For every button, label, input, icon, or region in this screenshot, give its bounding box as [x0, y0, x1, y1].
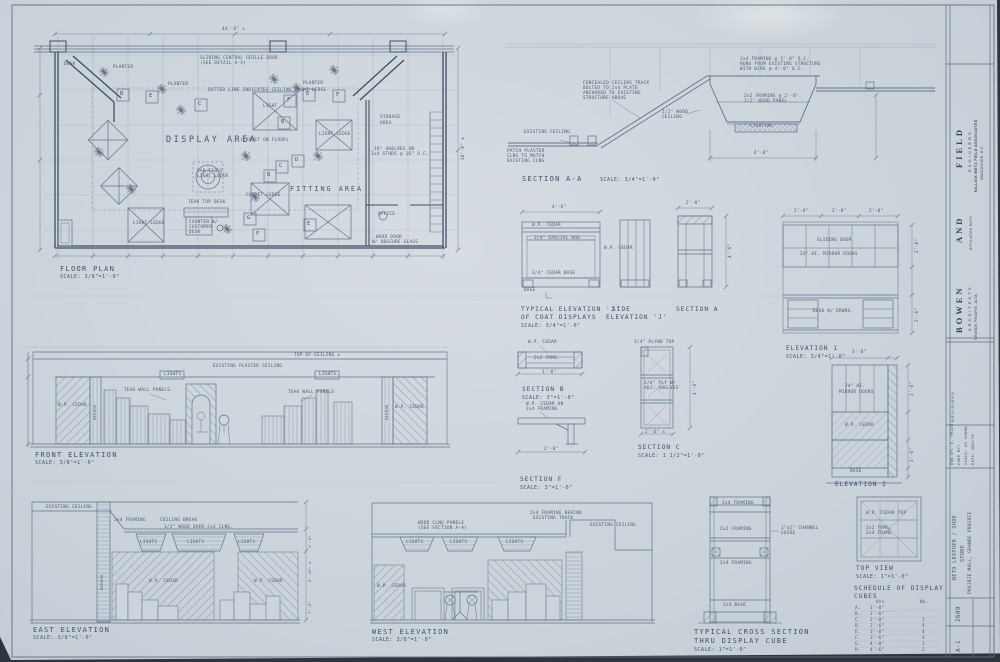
panel-note: 1/2" WOOD PANEL — [744, 100, 787, 104]
elev-j-title: TYPICAL ELEVATION 'J' — [521, 307, 620, 313]
wp-cedar-label: W.P. CEDAR — [377, 585, 406, 589]
sheet-scale: SCALE: AS SHOWN — [964, 426, 968, 465]
schedule-cell: 4'-6" — [870, 649, 884, 653]
desk-drawers-label: DESK W/ DRWRS. — [813, 310, 853, 314]
section-a-title: SECTION A — [676, 307, 719, 313]
dim: 2'-6" — [911, 448, 915, 462]
checked-by: CHKD BY: — [957, 444, 961, 465]
overall-dim: 44'-6" ± — [222, 28, 245, 32]
schedule-cell: 2'-0" — [870, 619, 884, 623]
side-elev-j-title: ELEVATION 'J' — [606, 315, 667, 321]
schedule-cell: 4 — [922, 625, 925, 629]
schedule-cell: 3'-0" — [870, 631, 884, 635]
section-aa-title: SECTION A-A — [522, 176, 583, 183]
cube-letter: E — [306, 92, 310, 98]
wp-cedar-label: W.P. CEDAR — [604, 247, 633, 251]
wp-cedar-label: W.P. CEDAR — [845, 424, 874, 428]
schedule-cell: 2'-6" — [870, 625, 884, 629]
dim: 1'-6" — [542, 371, 556, 375]
elev-j-scale: SCALE: 3/4"=1'-0" — [521, 324, 581, 329]
lights-label: LIGHTS — [450, 541, 467, 545]
mirror-doors-label: 24" HI. — [845, 385, 865, 389]
drawing-sheet-photo: FLOOR PLAN SCALE: 3/8"=1'-0" DISPLAY ARE… — [0, 0, 1000, 662]
cube-letter: C — [279, 164, 283, 170]
planter-label: PLANTER — [303, 82, 323, 86]
framing-label: 2x2 FRMG. — [534, 357, 560, 361]
cedar-top-label: W.P. CEDAR TOP — [866, 512, 906, 516]
schedule-row: E. — [855, 631, 861, 635]
schedule-row: A. — [855, 607, 861, 611]
cube-letter: B — [120, 92, 124, 98]
existing-ceiling-note: EXISTING CEILING — [524, 131, 570, 135]
schedule-cell: 1'-0" — [870, 607, 884, 611]
teak-panels-note: TEAK WALL PANELS — [124, 389, 170, 393]
cube-letter: F — [287, 98, 291, 104]
firm-name-field: FIELD — [955, 127, 964, 168]
framing-label: 2x4 FRAMING — [720, 562, 752, 566]
job-number: 2609 — [956, 606, 962, 622]
floor-plan-scale: SCALE: 3/8"=1'-0" — [60, 275, 120, 280]
ceiling-panels-note: (SEE SECTION A-A) — [418, 527, 467, 531]
schedule-title: CUBES — [854, 594, 878, 600]
dim: 2'-6" — [916, 308, 920, 322]
elev-2-title: ELEVATION 2 — [835, 482, 887, 488]
oak-table-label: LIGHT LEDGE — [197, 175, 229, 179]
schedule-cell: 4'-0" — [870, 643, 884, 647]
cube-letter: F — [336, 93, 340, 99]
associates-label: KILLICK METZ FIELD ASSOCIATES — [975, 120, 979, 192]
framing-label: 2x4 FRAME — [866, 532, 892, 536]
existing-ceiling-note: EXISTING CEILING — [590, 524, 636, 528]
elev-1-title: ELEVATION 1 — [786, 346, 838, 352]
wood-door-note: W/ OBSCURE GLASS — [372, 241, 418, 245]
cross-section-title: THRU DISPLAY CUBE — [694, 638, 788, 645]
schedule-row: H. — [855, 649, 861, 653]
side-elev-j-title: SIDE — [612, 307, 631, 313]
mirror-label: MIRROR — [93, 404, 97, 420]
wood-ceiling-note: CEILING — [662, 116, 682, 120]
dim: 4'-6" — [694, 381, 698, 395]
teak-desk-label: TEAK TOP DESK — [188, 201, 226, 205]
cube-letter: B — [281, 120, 285, 126]
elev-1-linework — [781, 214, 914, 335]
lights-label: LIGHTS — [164, 373, 181, 377]
wp-cedar-label: W.P. CEDAR — [528, 341, 557, 345]
wood-ceiling-note: 1/2" WOOD OVER 2x4 CLNG. — [164, 526, 233, 530]
existing-ceiling-note: EXISTING PLASTER CEILING — [213, 365, 282, 369]
schedule-row: B. — [855, 613, 861, 617]
cove-dim: 4'-0" — [754, 152, 768, 156]
desk-label: DESK — [64, 63, 76, 67]
top-view-scale: SCALE: 1"=1'-0" — [856, 575, 909, 580]
wp-cedar-label: W.P. CEDAR — [254, 580, 283, 584]
schedule-col-hts: Hts — [876, 601, 885, 605]
firm-name-and: AND — [955, 216, 964, 243]
east-elev-title: EAST ELEVATION — [33, 627, 110, 634]
ceiling-break-note: CEILING BREAK — [160, 519, 198, 523]
floor-plan-title: FLOOR PLAN — [60, 266, 115, 273]
dim: 1'-6" — [308, 535, 312, 548]
section-c-scale: SCALE: 1 1/2"=1'-0" — [638, 454, 705, 459]
cube-letter: D — [295, 158, 299, 164]
ceiling-track-note: STRUCTURE ABOVE — [583, 97, 626, 101]
elev-2-linework — [826, 356, 910, 483]
elev-1-scale: SCALE: 3/4"=1'-0" — [786, 355, 846, 360]
lights-label: LIGHTS — [406, 541, 423, 545]
existing-ceiling-note: EXISTING CEILING — [46, 506, 92, 510]
dim: 3'-0" — [852, 351, 866, 355]
sheet-number: A-1 — [956, 640, 962, 652]
schedule-cell: 4 — [922, 631, 925, 635]
light-label: LIGHT — [263, 105, 277, 109]
dim: 2'-8" — [794, 210, 808, 214]
cube-letter: B — [267, 173, 271, 179]
display-area-note: (CARPET ON FLOOR) — [240, 139, 289, 143]
mirror-doors-label: MIRROR DOORS — [839, 391, 874, 395]
drawn-by: DWN BY: E. FRAZO — [950, 424, 954, 465]
engineers-label: ENGINEERS — [968, 130, 972, 172]
dim: 2'-0" — [544, 448, 558, 452]
teak-panels-note: TEAK WALL PANELS — [288, 391, 334, 395]
dim: 7'-6" — [308, 601, 312, 614]
sliding-door-label: SLIDING DOOR — [817, 239, 852, 243]
floor-plan-linework — [34, 32, 460, 260]
west-elev-scale: SCALE: 3/8"=1'-0" — [372, 638, 432, 643]
plywood-top-note: 3/4" PLYWD TOP — [634, 341, 674, 345]
mirror-doors-label: 24" HI. MIRROR DOORS — [800, 253, 858, 257]
project-name: STORE — [961, 545, 966, 562]
schedule-row: D. — [855, 625, 861, 629]
schedule-row: G. — [855, 643, 861, 647]
sheet-date: DATE: NOV/76 — [971, 434, 975, 465]
depth-dim: 2'-0" — [686, 202, 700, 206]
storage-area-label: AREA — [380, 122, 392, 126]
height-dim: 4'-6" — [729, 244, 733, 258]
cross-section-scale: SCALE: 1"=1'-0" — [694, 648, 747, 653]
mirror-label: MIRROR — [100, 574, 104, 590]
firm-name-bowen: BOWEN — [955, 285, 964, 333]
cube-letter: F — [256, 232, 260, 238]
lights-label: LIGHTS — [140, 541, 157, 545]
elev-j-linework — [520, 206, 728, 298]
cedar-framing-note: 2x4 FRAMING — [526, 408, 558, 412]
cube-letter: C — [198, 102, 202, 108]
east-elev-scale: SCALE: 3/8"=1'-0" — [33, 636, 93, 641]
schedule-cell: 2 — [922, 649, 925, 653]
wp-cedar-label: W.P. CEDAR — [395, 406, 424, 410]
base-label: BASE — [524, 289, 536, 293]
section-f-scale: SCALE: 3"=1'-0" — [520, 486, 573, 491]
cross-section-title: TYPICAL CROSS SECTION — [694, 629, 810, 636]
architects-label: ARCHITECTS — [968, 285, 972, 331]
schedule-cell: 4 — [922, 637, 925, 641]
front-elev-scale: SCALE: 3/8"=1'-0" — [35, 461, 95, 466]
adj-shelves-note: ADJ. SHELVES — [644, 387, 679, 391]
project-name: NETO LEATHER / SHOE — [953, 515, 958, 580]
sliding-door-note: (SEE DETAIL A-A) — [200, 62, 246, 66]
section-b-title: SECTION B — [522, 387, 565, 393]
schedule-cell: 2 — [922, 619, 925, 623]
associates-city: VANCOUVER, B.C. — [981, 145, 985, 180]
schedule-row: C. — [855, 619, 861, 623]
west-elev-title: WEST ELEVATION — [372, 629, 449, 636]
counter-label: DESK — [189, 231, 201, 235]
schedule-cell: 1'-6" — [870, 613, 884, 617]
cube-letter: G — [247, 216, 251, 222]
office-label: OFFICE — [378, 213, 395, 217]
section-f-title: SECTION F — [520, 477, 563, 483]
west-elev-linework — [370, 503, 655, 623]
light-ledge-label: LIGHT LEDGE — [133, 222, 165, 226]
cube-letter: E — [307, 222, 311, 228]
base-label: 2x4 BASE — [723, 604, 746, 608]
lights-label: LIGHTS — [506, 541, 523, 545]
project-location: PRAIRIE MALL, GRANDE PRAIRIE — [969, 512, 973, 594]
wp-cedar-label: W.P. CEDAR — [532, 224, 561, 228]
width-dim: 4'-6" — [552, 206, 566, 210]
base-label: BASE — [850, 470, 862, 474]
schedule-ruling — [853, 611, 940, 653]
framing-note: WITH WIRE @ 4'-0" O.C. — [740, 68, 804, 72]
section-aa-linework — [505, 44, 935, 162]
top-of-ceiling-note: TOP OF CEILING ± — [294, 354, 340, 358]
front-elev-title: FRONT ELEVATION — [35, 452, 118, 459]
lights-label: LIGHTS — [238, 541, 255, 545]
lighting-label: LIGHTING — [750, 125, 773, 129]
front-elev-linework — [20, 347, 450, 447]
section-aa-scale: SCALE: 3/4"=1'-0" — [600, 178, 660, 183]
cube-letter: E — [149, 94, 153, 100]
dim: 2'-6" ± — [645, 431, 665, 435]
planter-label: PLANTER — [113, 66, 133, 70]
dim: 2'-0" — [911, 382, 915, 396]
framing-note: 2x4 FRAMING — [114, 519, 146, 523]
dim: 3'-10" ± — [308, 561, 312, 582]
lights-label: LIGHTS — [187, 541, 204, 545]
dim: 2'-8" — [869, 210, 883, 214]
schedule-row: F. — [855, 637, 861, 641]
fitting-area-label: FITTING AREA — [290, 186, 363, 193]
rod-label: 3/4" SPECIAL ROD — [534, 237, 580, 241]
carpet-ledge-label: CARPET LEDGE — [246, 194, 281, 198]
storage-area-label: STORAGE — [380, 116, 400, 120]
light-ledge-label: LIGHT LEDGE — [319, 133, 351, 137]
schedule-title: SCHEDULE OF DISPLAY — [854, 586, 944, 592]
top-view-title: TOP VIEW — [856, 566, 894, 572]
dim: 2'-8" — [832, 210, 846, 214]
framing-label: 2x2 FRAMING — [720, 528, 752, 532]
wp-cedar-label: W.P. CEDAR — [149, 580, 178, 584]
schedule-cell: 3'-6" — [870, 637, 884, 641]
mirror-label: MIRROR — [385, 404, 389, 420]
lights-label: LIGHTS — [319, 373, 336, 377]
schedule-cell: 1 — [922, 643, 925, 647]
elev-j-title: OF COAT DISPLAYS — [521, 315, 597, 321]
affiliated-label: AFFILIATED WITH — [970, 216, 974, 250]
planter-label: PLANTER — [168, 83, 188, 87]
shelf-note: 2x4 STUDS @ 16" O.C. — [371, 153, 429, 157]
section-c-title: SECTION C — [638, 445, 681, 451]
framing-note: EXISTING TRACK — [533, 517, 573, 521]
wp-cedar-label: W.P. CEDAR — [58, 404, 87, 408]
channel-guide-note: GUIDE — [781, 532, 795, 536]
dim: 2'-0" — [916, 239, 920, 253]
firm-city: GRANDE PRAIRIE, ALTA. — [975, 293, 979, 340]
cedar-base-label: 3/4" CEDAR BASE — [532, 272, 575, 276]
section-b-scale: SCALE: 3"=1'-0" — [522, 396, 575, 401]
revisions-label: REVISIONS — [951, 391, 955, 422]
right-dim: 28'-0" ± — [462, 137, 466, 160]
framing-label: 2x4 FRAMING — [722, 502, 754, 506]
schedule-col-no: No. — [920, 601, 929, 605]
patch-plaster-note: EXISTING CLNG — [507, 160, 545, 164]
